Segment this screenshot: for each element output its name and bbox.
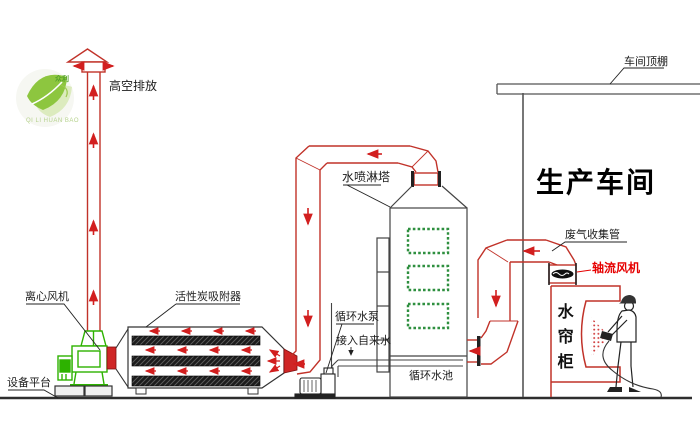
fan-outlet-connector	[107, 347, 116, 369]
label-circulating-water-pool: 循环水池	[409, 370, 453, 382]
label-equipment-platform: 设备平台	[7, 377, 51, 389]
axial-fan-leader	[577, 270, 591, 272]
process-diagram-canvas	[0, 0, 700, 430]
label-activated-carbon-adsorber: 活性炭吸附器	[175, 291, 241, 303]
label-spray-tower: 水喷淋塔	[342, 171, 390, 184]
rain-cap-icon	[68, 49, 107, 62]
label-workshop-ceiling: 车间顶棚	[624, 56, 668, 68]
equipment-platform-icon	[55, 386, 112, 396]
label-axial-fan: 轴流风机	[592, 262, 640, 275]
label-circulating-water-pump: 循环水泵	[335, 311, 379, 323]
label-centrifugal-fan: 离心风机	[25, 291, 69, 303]
chimney-stack	[68, 49, 107, 331]
spray-tower-icon	[377, 186, 467, 397]
label-tap-water-inlet: 接入自来水	[336, 335, 391, 347]
logo-inner-text: 众利	[55, 76, 69, 84]
label-production-workshop: 生产车间	[536, 168, 656, 199]
duct-flow-arrows	[294, 154, 382, 364]
label-water-curtain-cabinet: 水帘柜	[554, 303, 572, 378]
logo-caption-text: QI LI HUAN BAO	[26, 118, 79, 125]
workshop-roof	[497, 84, 700, 94]
tower-windows	[408, 229, 448, 328]
duct-flange-bar	[477, 336, 481, 366]
circulating-pump-icon	[295, 368, 335, 398]
label-exhaust-collection-pipe: 废气收集管	[565, 229, 620, 241]
stack-flow-arrows	[74, 66, 113, 305]
centrifugal-fan-icon	[58, 331, 108, 387]
diagram-page: 高空排放 车间顶棚 生产车间 水喷淋塔 废气收集管 轴流风机 水帘柜 离心风机 …	[0, 0, 700, 430]
label-high-emission: 高空排放	[109, 80, 157, 93]
